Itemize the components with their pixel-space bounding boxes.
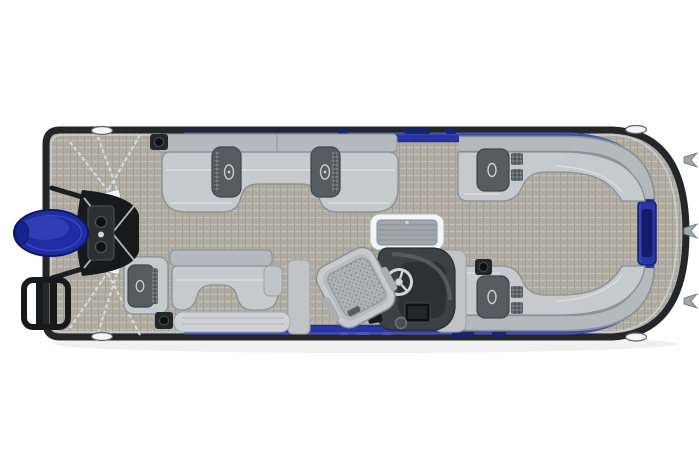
lounge-backrest: [170, 250, 272, 266]
console-body: [477, 276, 509, 318]
pontoon-floorplan-image: [0, 0, 699, 466]
speaker-grille: [511, 153, 523, 165]
speaker-grille: [332, 152, 338, 192]
cleat: [92, 333, 113, 341]
motor-cowling: [14, 210, 88, 256]
ladder-rung: [50, 281, 57, 326]
partition-wall: [288, 260, 310, 334]
console-body: [477, 149, 509, 191]
cowling-nose: [16, 222, 29, 245]
armrest: [264, 266, 282, 296]
mount-bolt: [98, 232, 104, 238]
helm-display-screen: [408, 306, 427, 319]
speaker-grille: [152, 268, 158, 304]
hook: [684, 153, 697, 167]
deck-speaker: [475, 259, 492, 275]
storage-bench: [174, 312, 290, 332]
rail-registration-mark: [382, 332, 392, 335]
rail-registration-mark: [340, 332, 348, 335]
gate-window: [642, 209, 653, 257]
helm-cupholder: [396, 318, 407, 329]
rail-registration-mark: [356, 332, 370, 335]
brand-badge-dot: [324, 171, 327, 174]
armrest-console: [212, 147, 241, 197]
speaker-grille: [511, 302, 523, 314]
speaker-cone: [160, 316, 169, 325]
rail-clamp: [446, 127, 456, 134]
rail-clamp: [404, 127, 430, 134]
cleat: [626, 333, 647, 341]
headrest-console: [128, 265, 154, 307]
brand-badge-dot: [228, 171, 231, 174]
deck-speaker: [150, 134, 168, 150]
bow-gate: [638, 201, 656, 265]
cleat: [626, 126, 647, 134]
armrest-console: [311, 147, 340, 197]
speaker-cone: [155, 138, 164, 147]
rail-clamp: [492, 331, 506, 337]
bow-hooks: [684, 153, 697, 308]
cleat: [92, 127, 113, 135]
speaker-cone: [479, 263, 488, 272]
ladder-rung: [36, 281, 43, 326]
hook: [684, 294, 697, 308]
speaker-grille: [511, 286, 523, 298]
speaker-grille: [511, 169, 523, 181]
boat-rendering: [0, 0, 699, 466]
mount-hole: [96, 217, 107, 228]
table-cupholder: [405, 220, 410, 225]
mount-hole: [96, 242, 107, 253]
speaker-grille: [214, 152, 220, 192]
deck-speaker: [155, 312, 173, 329]
